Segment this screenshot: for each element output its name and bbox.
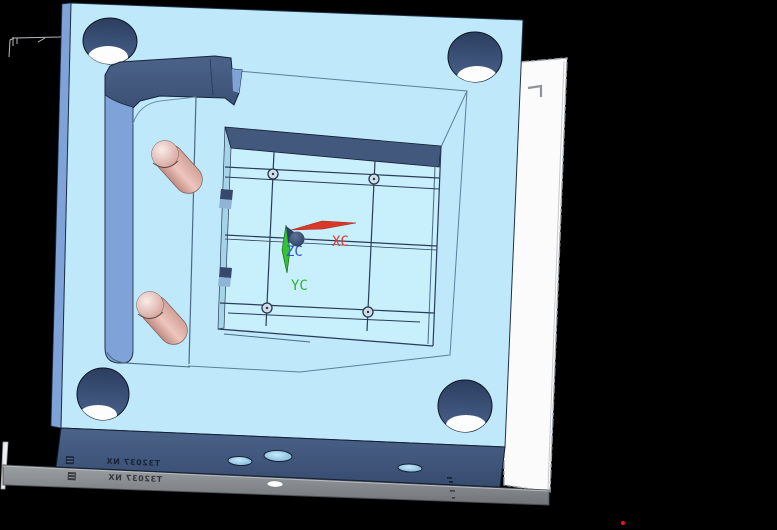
pocket-screw-hole[interactable] bbox=[262, 303, 272, 313]
stamp-mark bbox=[450, 490, 455, 492]
stamp-logo-band bbox=[66, 456, 74, 464]
pocket-screw-hole[interactable] bbox=[369, 174, 379, 184]
wcs-y-label: YC bbox=[291, 278, 308, 294]
pocket-wall-notch[interactable] bbox=[219, 189, 233, 209]
wcs-x-label: XC bbox=[332, 234, 349, 250]
viewport-3d[interactable]: T32037 NX T32037 NX bbox=[0, 0, 777, 530]
wcs-origin-sphere[interactable] bbox=[290, 232, 305, 247]
wcs-z-label: ZC bbox=[286, 244, 303, 260]
stamp-mark bbox=[447, 477, 452, 479]
cad-canvas[interactable]: T32037 NX T32037 NX bbox=[0, 0, 777, 530]
stamp-mark bbox=[449, 481, 453, 483]
pocket-screw-hole[interactable] bbox=[363, 307, 373, 317]
ejector-pocket[interactable] bbox=[218, 127, 441, 346]
background-wireframe-edge bbox=[9, 34, 67, 57]
stamp-mark bbox=[452, 497, 455, 499]
stamp-logo-strip bbox=[68, 472, 76, 480]
red-dot-artifact bbox=[621, 521, 625, 525]
pocket-screw-hole[interactable] bbox=[268, 169, 278, 179]
boss-left-wall[interactable] bbox=[105, 95, 133, 363]
pocket-wall-notch[interactable] bbox=[218, 267, 232, 287]
